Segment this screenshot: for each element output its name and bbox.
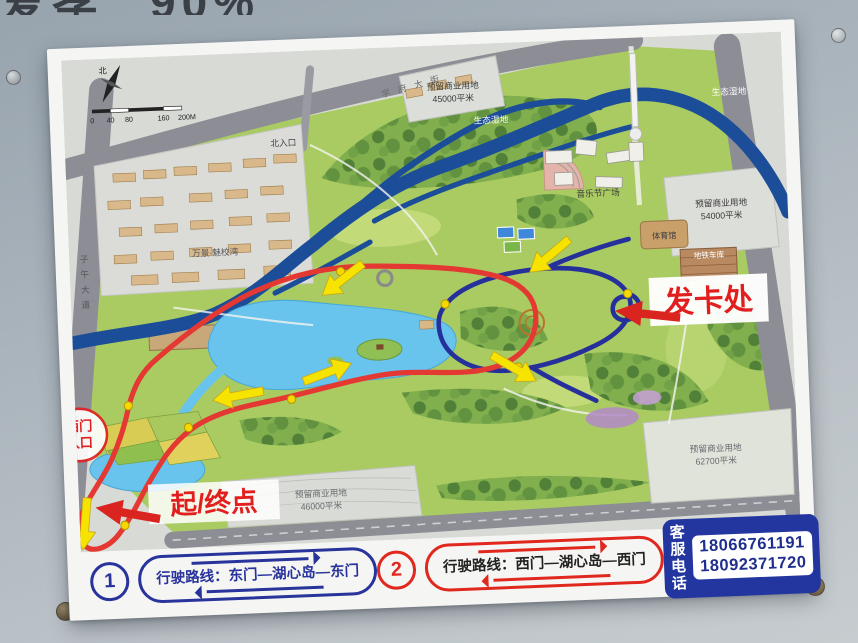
loop-arrow-left-icon xyxy=(207,586,324,594)
cropped-sign-text-left: 爱孝 xyxy=(0,0,104,15)
cropped-sign-text: 爱孝90% xyxy=(0,0,460,15)
route1-number: 1 xyxy=(89,561,130,602)
route2-number: 2 xyxy=(376,549,417,590)
loop-arrow-right-icon xyxy=(192,557,309,565)
plot-label: 预留商业用地 xyxy=(427,79,480,92)
route1-pill: 行驶路线：东门—湖心岛—东门 xyxy=(137,546,378,604)
screw-icon xyxy=(6,70,21,85)
plot-label: 预留商业用地 xyxy=(295,486,348,499)
screw-icon xyxy=(831,28,846,43)
route2: 2 行驶路线：西门—湖心岛—西门 xyxy=(376,535,665,595)
park-map: 北 0 40 80 160 200M 学府大街 子午大道 北入口 预留商业用地 … xyxy=(61,32,800,552)
west-gate-label: 西门 xyxy=(65,417,92,434)
scale-tick: 80 xyxy=(125,115,133,124)
north-entrance-label: 北入口 xyxy=(270,137,296,148)
route1-text: 行驶路线：东门—湖心岛—东门 xyxy=(156,563,359,587)
gym-label: 体育馆 xyxy=(652,230,677,241)
plot-label: 预留商业用地 xyxy=(689,441,742,454)
dock xyxy=(419,320,434,329)
plot-label: 预留商业用地 xyxy=(695,196,748,209)
compass-north-label: 北 xyxy=(98,66,107,75)
scale-tick: 0 xyxy=(90,116,94,125)
plot-area-label: 46000平米 xyxy=(300,499,342,512)
wetland-label: 生态湿地 xyxy=(711,85,746,98)
service-label: 客服 电话 xyxy=(669,524,687,594)
metro-depot-label: 地铁车库 xyxy=(693,249,724,260)
photo-background: 爱孝90% xyxy=(0,0,858,643)
west-gate-label: 入口 xyxy=(66,435,93,451)
service-phone-box: 客服 电话 18066761191 18092371720 xyxy=(662,513,822,598)
route2-pill: 行驶路线：西门—湖心岛—西门 xyxy=(424,535,665,593)
plot-area-label: 54000平米 xyxy=(701,209,743,222)
loop-arrow-right-icon xyxy=(479,545,596,553)
residential-label: 万景·魅校湾 xyxy=(192,246,239,259)
scale-tick: 160 xyxy=(157,113,169,123)
loop-arrow-left-icon xyxy=(494,574,611,582)
start-end-label: 起/终点 xyxy=(170,485,258,520)
service-phone-numbers: 18066761191 18092371720 xyxy=(692,531,814,579)
map-poster: 北 0 40 80 160 200M 学府大街 子午大道 北入口 预留商业用地 … xyxy=(47,19,817,621)
route1: 1 行驶路线：东门—湖心岛—东门 xyxy=(89,546,378,606)
route2-text: 行驶路线：西门—湖心岛—西门 xyxy=(443,551,646,575)
service-label-line1: 客服 xyxy=(669,524,685,559)
service-phone-2: 18092371720 xyxy=(700,553,807,577)
music-plaza-label: 音乐节广场 xyxy=(576,186,620,199)
monument-plaza xyxy=(629,127,642,140)
scale-tick: 200M xyxy=(178,112,196,122)
wetland-label: 生态湿地 xyxy=(473,113,508,126)
cropped-sign-text-right: 90% xyxy=(150,0,260,15)
scale-tick: 40 xyxy=(106,115,114,124)
island-pavilion xyxy=(376,344,383,350)
plot-area-label: 45000平米 xyxy=(432,92,474,105)
service-label-line2: 电话 xyxy=(671,558,687,593)
plot-area-label: 62700平米 xyxy=(695,454,737,467)
